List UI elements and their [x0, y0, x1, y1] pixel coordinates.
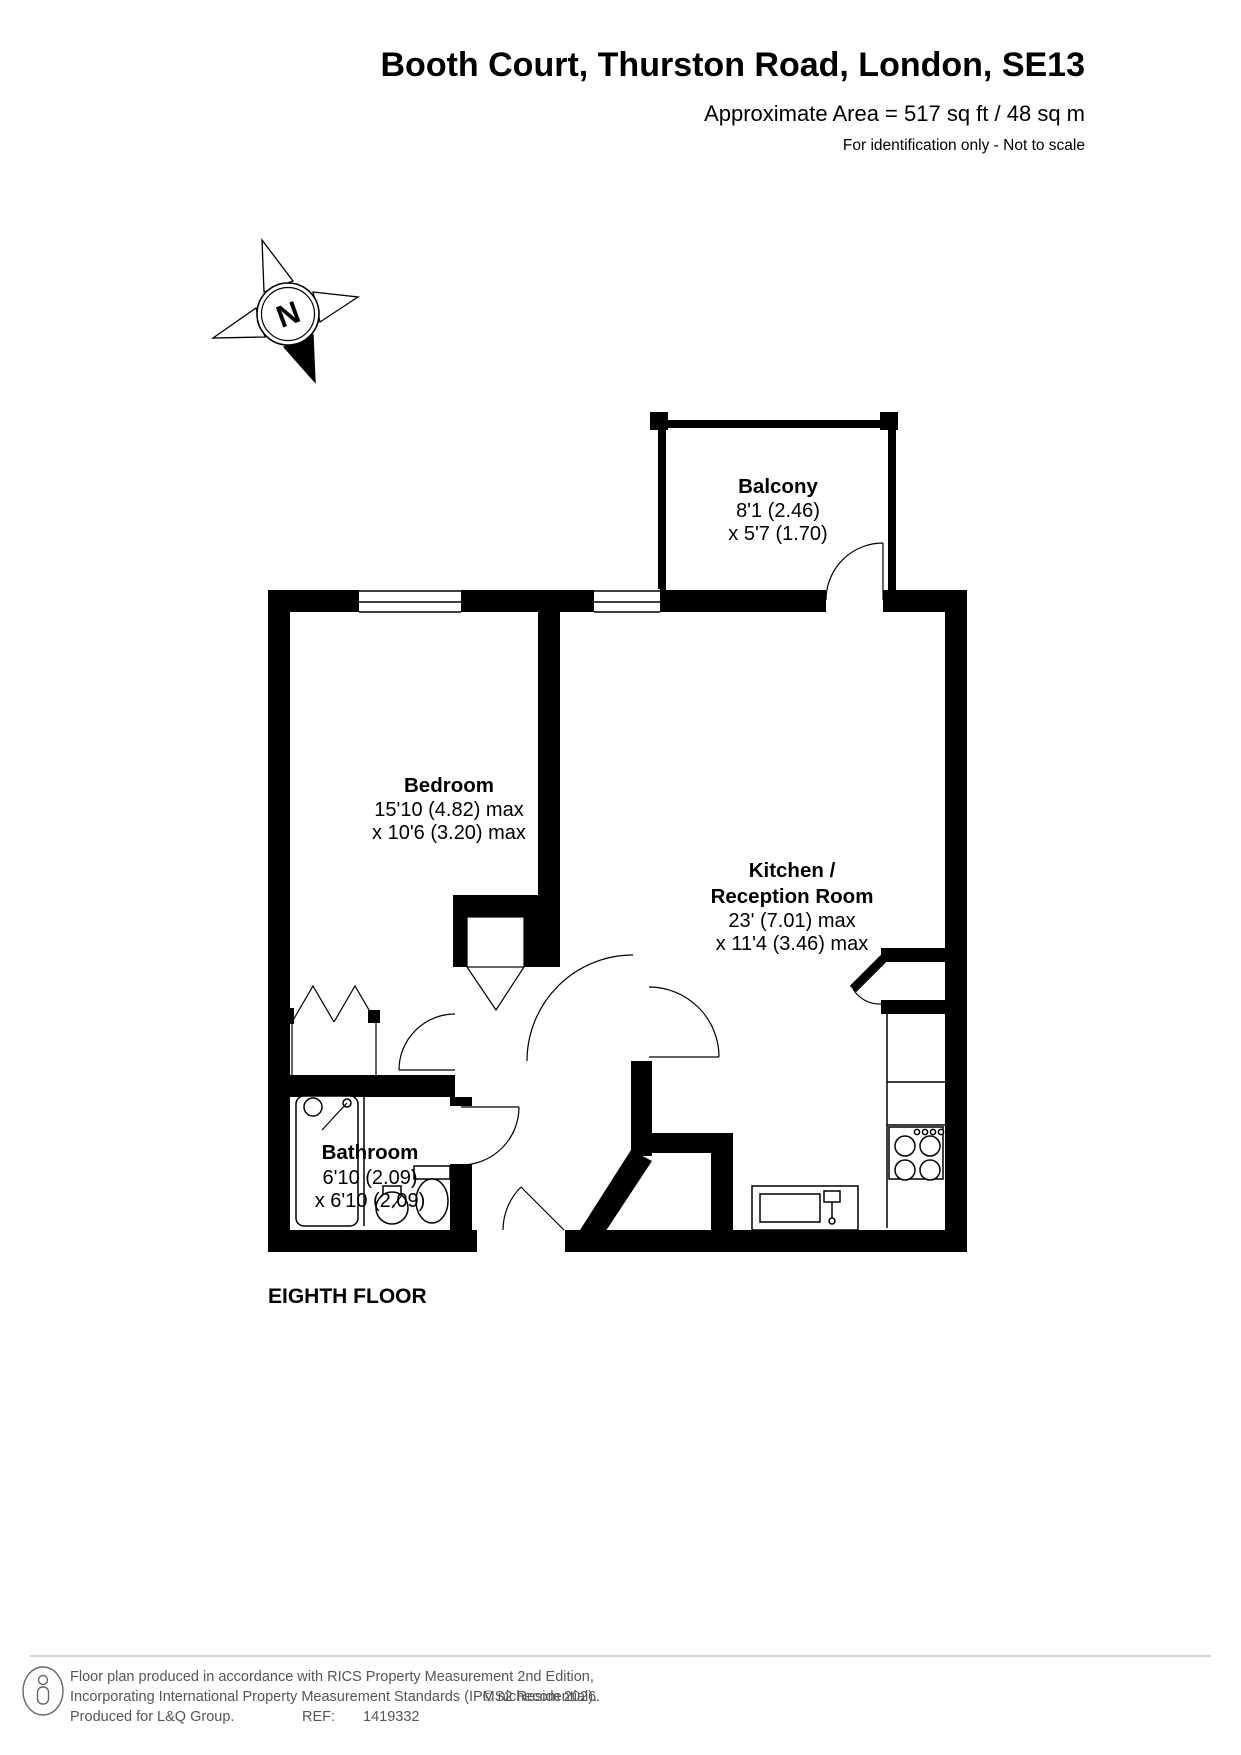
- cupboard-doors: [467, 967, 524, 1010]
- balcony-door: [826, 543, 883, 613]
- compass-rose-icon: N: [213, 240, 358, 382]
- kitchen-dim1: 23' (7.01) max: [728, 910, 855, 932]
- hob: [889, 1127, 944, 1180]
- balcony-dim2: x 5'7 (1.70): [728, 523, 827, 545]
- footer-line3: Produced for L&Q Group.: [70, 1709, 234, 1725]
- bathroom-dim1: 6'10 (2.09): [323, 1167, 418, 1189]
- floor-label: EIGHTH FLOOR: [268, 1285, 427, 1308]
- balcony-post-right: [880, 412, 898, 430]
- recess-door-leaf: [853, 958, 884, 989]
- balcony-label: Balcony 8'1 (2.46) x 5'7 (1.70): [728, 475, 827, 545]
- kitchen-name-line1: Kitchen /: [749, 859, 836, 882]
- balcony-post-left: [650, 412, 668, 430]
- kitchen-window: [594, 589, 660, 613]
- entrance-door: [477, 1187, 565, 1253]
- bedroom-door: [399, 1014, 455, 1070]
- bathroom-name: Bathroom: [322, 1141, 419, 1164]
- bedroom-label: Bedroom 15'10 (4.82) max x 10'6 (3.20) m…: [372, 774, 526, 844]
- kitchen-door: [527, 955, 719, 1061]
- bedroom-dim2: x 10'6 (3.20) max: [372, 822, 526, 844]
- identification-note: For identification only - Not to scale: [843, 137, 1085, 154]
- footer-copyright: © nichecom 2026.: [483, 1689, 600, 1705]
- balcony-name: Balcony: [738, 475, 818, 498]
- hall-cupboard: [467, 917, 524, 967]
- floorplan-page: Booth Court, Thurston Road, London, SE13…: [0, 0, 1241, 1755]
- kitchen-dim2: x 11'4 (3.46) max: [716, 933, 868, 955]
- bedroom-closet-doors: [284, 986, 380, 1075]
- footer: Floor plan produced in accordance with R…: [23, 1656, 1211, 1725]
- footer-line1: Floor plan produced in accordance with R…: [70, 1669, 594, 1685]
- page-title: Booth Court, Thurston Road, London, SE13: [381, 46, 1086, 84]
- footer-ref-number: 1419332: [363, 1709, 419, 1725]
- bedroom-dim1: 15'10 (4.82) max: [374, 799, 523, 821]
- bedroom-name: Bedroom: [404, 774, 494, 797]
- sink: [752, 1186, 858, 1230]
- kitchen-name-line2: Reception Room: [711, 885, 874, 908]
- bathroom-dim2: x 6'10 (2.09): [315, 1190, 426, 1212]
- person-icon: [23, 1667, 63, 1715]
- area-subtitle: Approximate Area = 517 sq ft / 48 sq m: [704, 101, 1085, 126]
- floor-plan-svg: Booth Court, Thurston Road, London, SE13…: [0, 0, 1241, 1755]
- kitchen-counter: [887, 1014, 945, 1228]
- kitchen-label: Kitchen / Reception Room 23' (7.01) max …: [711, 859, 874, 955]
- footer-ref-label: REF:: [302, 1709, 335, 1725]
- bathroom-label: Bathroom 6'10 (2.09) x 6'10 (2.09): [315, 1141, 426, 1212]
- balcony-dim1: 8'1 (2.46): [736, 500, 820, 522]
- bedroom-window: [359, 589, 461, 613]
- bathroom-door: [461, 1107, 519, 1165]
